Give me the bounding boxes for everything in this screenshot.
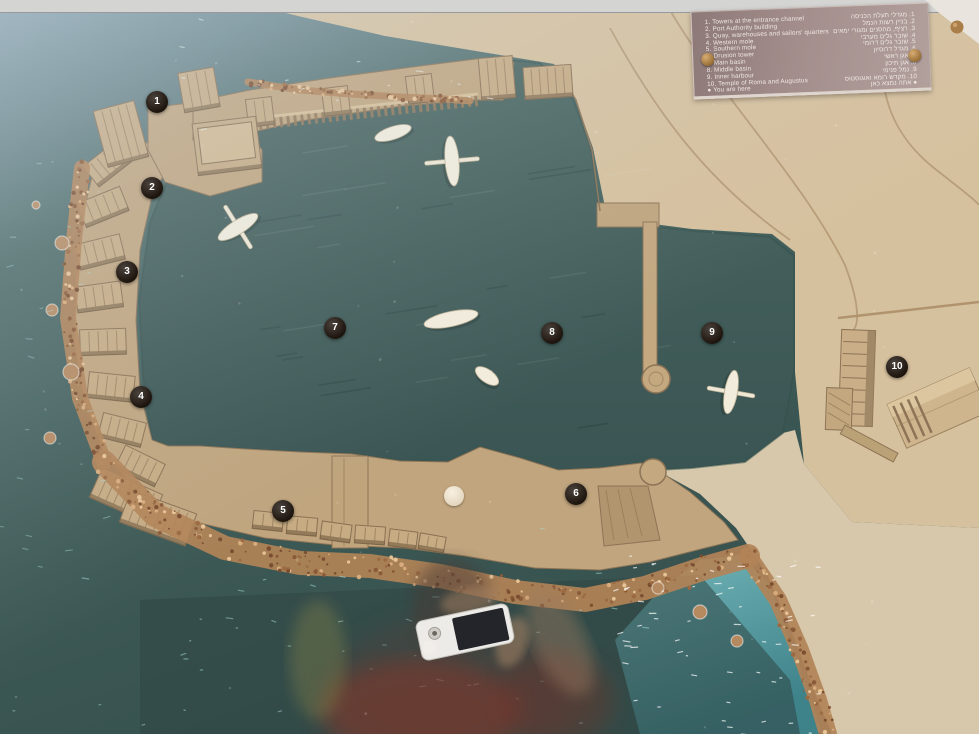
wall-knob: [951, 21, 964, 34]
legend-list: 1. Towers at the entrance channel1. מגדל…: [705, 12, 918, 95]
wall-knob-highlight: [953, 23, 957, 27]
legend-plaque: 1. Towers at the entrance channel1. מגדל…: [690, 2, 931, 99]
model-artwork: [0, 0, 979, 734]
glass-glare: [0, 0, 979, 734]
plaque-screw-right-icon: [908, 49, 921, 62]
harbor-model-photo: 1. Towers at the entrance channel1. מגדל…: [0, 0, 979, 734]
